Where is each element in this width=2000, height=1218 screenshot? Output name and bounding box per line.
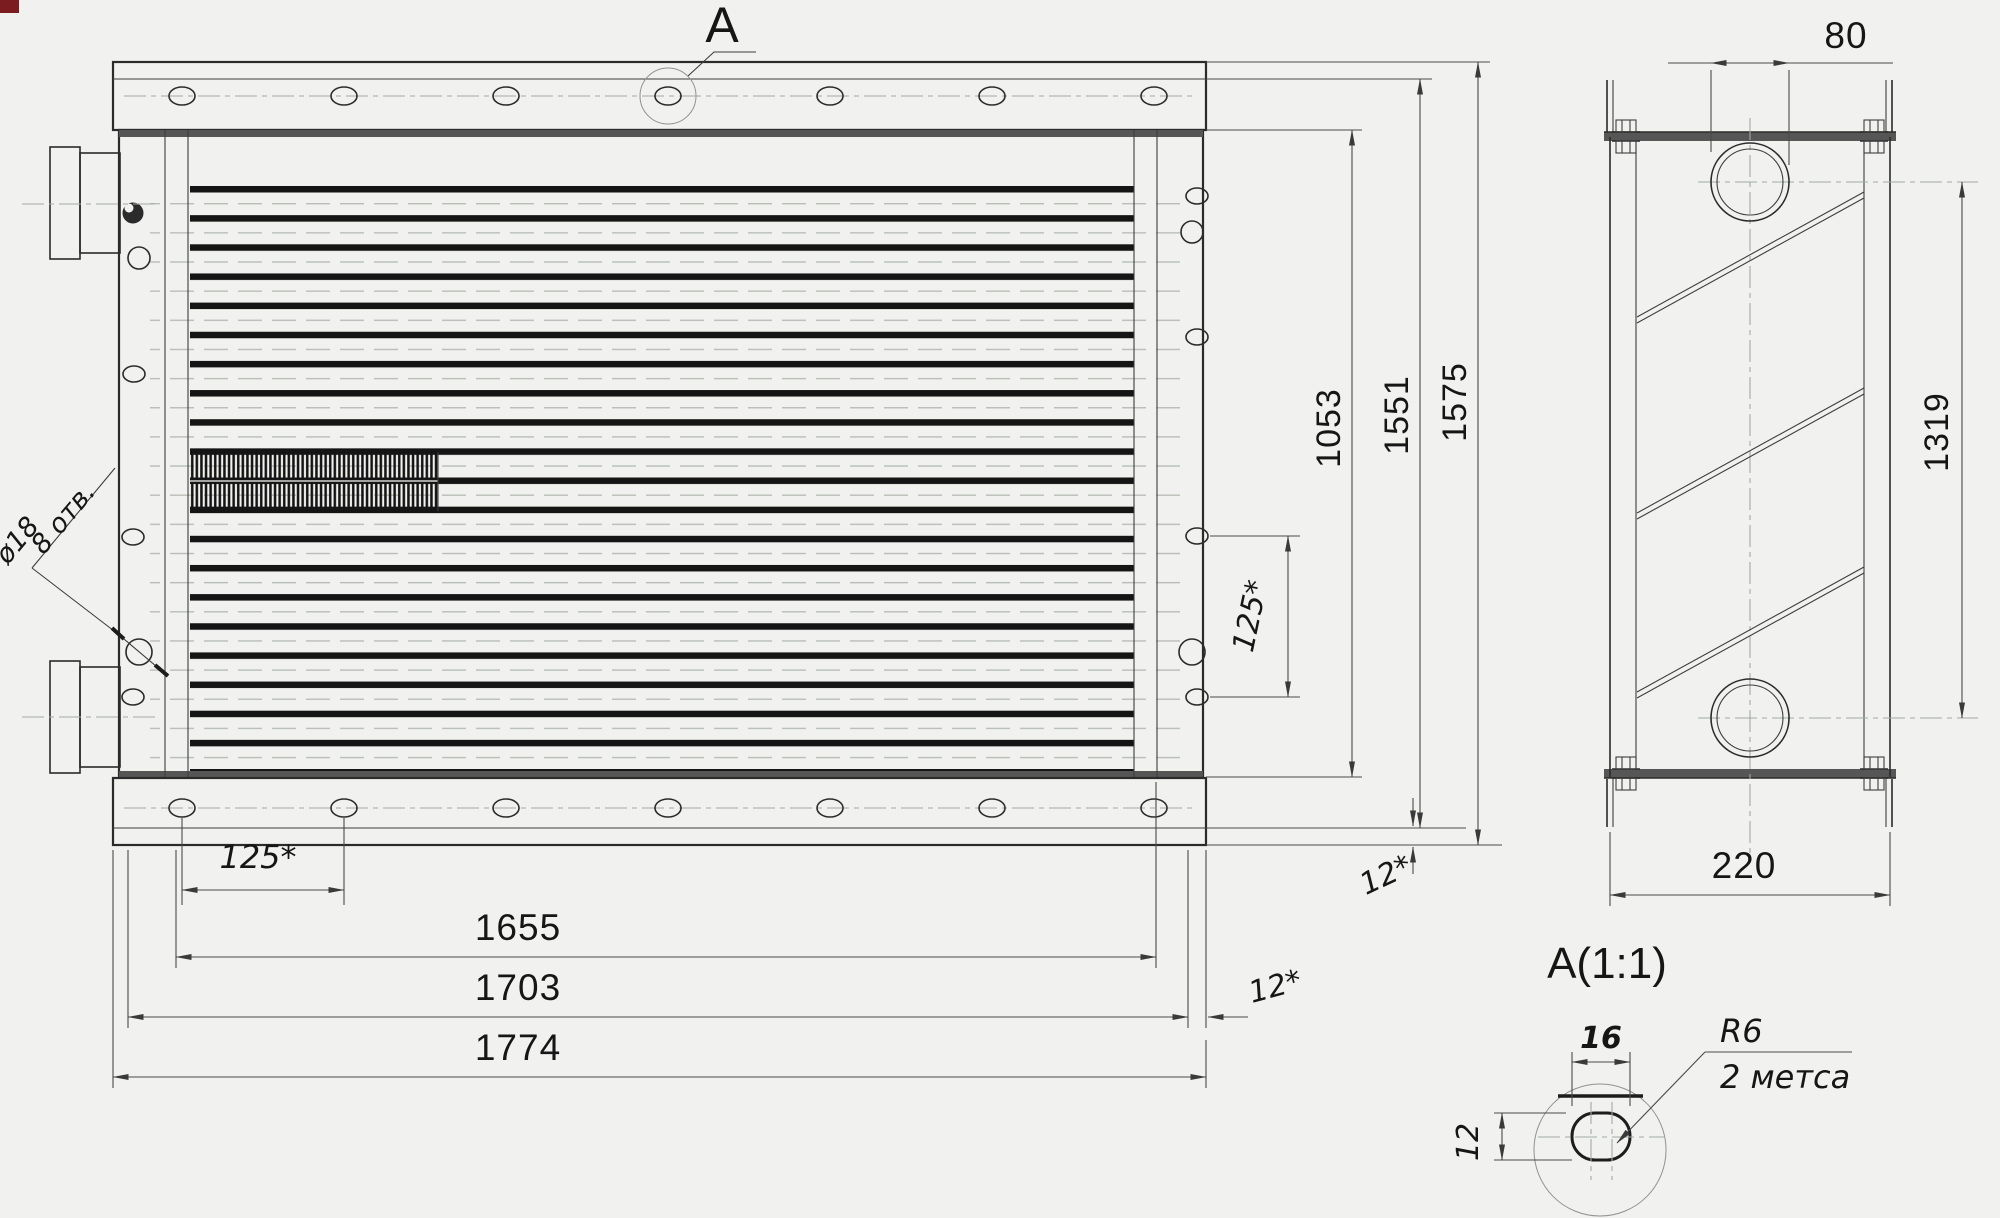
dim-80-group: 80 [1668, 15, 1893, 165]
left-column-holes [122, 203, 152, 705]
dim-overall-height: 1575 [1436, 362, 1474, 442]
places-note: 2 метса [1720, 1058, 1850, 1096]
dim-depth: 220 [1712, 845, 1777, 886]
detail-title: A(1:1) [1547, 939, 1667, 988]
hole-count-label: 8 отв. [25, 477, 102, 560]
upper-pipe-stub [22, 147, 160, 259]
dim-slot-width: 16 [1580, 1021, 1622, 1056]
dim-pipe-center-distance: 1319 [1918, 392, 1956, 472]
dim-hole-pitch-bottom: 125* [219, 838, 296, 876]
dim-offset-horizontal: 12* [1245, 963, 1305, 1011]
side-view: 80 1319 220 [1604, 15, 1978, 906]
core-body [119, 130, 1208, 779]
hole-callout: ø18 8 отв. [0, 468, 168, 676]
dim-tube-length: 1655 [475, 907, 561, 948]
dim-inner-height: 1551 [1378, 375, 1416, 455]
top-flange [113, 62, 1206, 130]
dim-core-height: 1053 [1310, 388, 1348, 468]
vertical-dimensions: 1053 1551 1575 12* 125* [1206, 62, 1502, 902]
dim-pipe-offset-top: 80 [1824, 15, 1867, 56]
dim-overall-width: 1774 [475, 1027, 561, 1068]
finned-tube [190, 449, 438, 513]
front-view: A [0, 0, 1502, 1088]
detail-view: A(1:1) 16 12 R6 2 метса [1451, 939, 1852, 1216]
dim-slot-height: 12 [1451, 1123, 1486, 1161]
bottom-flange [113, 778, 1206, 845]
dim-body-width: 1703 [475, 967, 561, 1008]
detail-boundary [1534, 1084, 1666, 1216]
lower-pipe-stub [22, 661, 160, 773]
engineering-drawing: A [0, 0, 2000, 1218]
dim-1319-group: 1319 [1918, 182, 1962, 718]
section-a-label: A [705, 0, 739, 53]
drawing-canvas: A [0, 0, 2000, 1218]
dim-hole-pitch-right: 125* [1226, 577, 1275, 655]
radius-callout: R6 [1720, 1012, 1763, 1050]
corner-artifact [0, 0, 19, 13]
dim-offset-vertical: 12* [1354, 848, 1417, 902]
dim-220-group: 220 [1610, 832, 1890, 906]
